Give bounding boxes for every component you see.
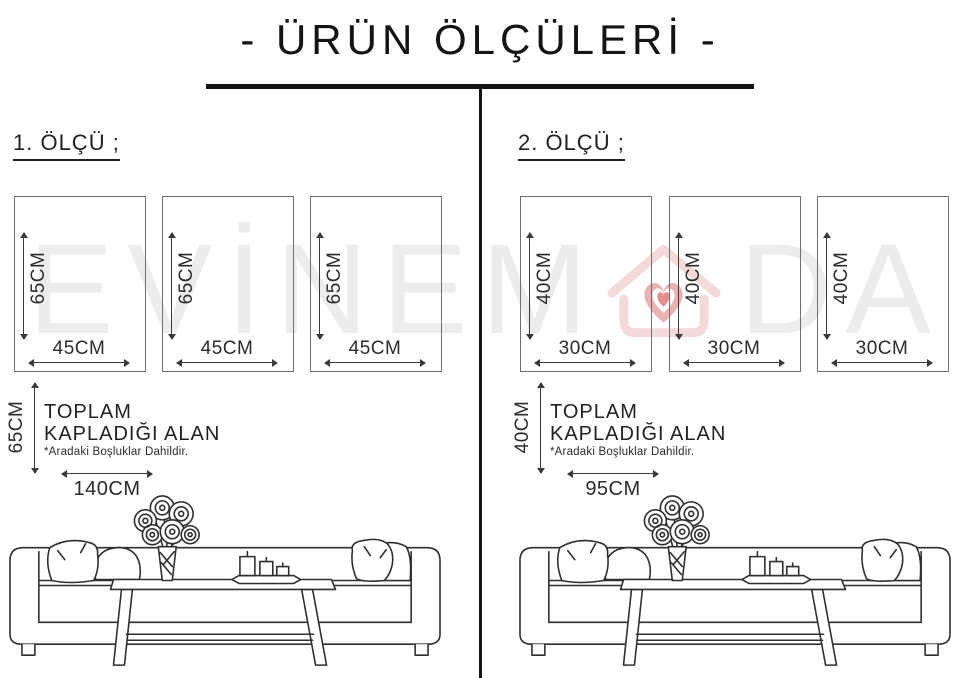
width-dimension-arrow xyxy=(177,362,277,363)
width-dimension-arrow xyxy=(684,362,784,363)
total-height-label: 40CM xyxy=(512,387,534,467)
artwork-panel: 40CM 30CM xyxy=(520,196,652,372)
width-dimension-label: 45CM xyxy=(27,338,131,360)
sofa-illustration xyxy=(6,494,444,670)
total-height-arrow xyxy=(34,383,35,473)
total-width-arrow xyxy=(62,473,152,474)
total-area-subtitle: KAPLADIĞI ALAN xyxy=(44,423,220,445)
sofa-illustration xyxy=(516,494,954,670)
total-area-title: TOPLAM xyxy=(550,401,726,423)
artwork-panel: 40CM 30CM xyxy=(669,196,801,372)
total-area-note: *Aradaki Boşluklar Dahildir. xyxy=(550,446,726,458)
width-dimension-label: 30CM xyxy=(533,338,637,360)
width-dimension-label: 45CM xyxy=(323,338,427,360)
total-area-subtitle: KAPLADIĞI ALAN xyxy=(550,423,726,445)
artwork-panel: 65CM 45CM xyxy=(162,196,294,372)
width-dimension-arrow xyxy=(325,362,425,363)
width-dimension-arrow xyxy=(832,362,932,363)
total-height-label: 65CM xyxy=(6,387,28,467)
product-dimensions-infographic: - ÜRÜN ÖLÇÜLERİ - E V İ N E M D A 1. ÖLÇ… xyxy=(0,0,960,678)
width-dimension-arrow xyxy=(29,362,129,363)
height-dimension-arrow xyxy=(826,233,827,339)
width-dimension-label: 30CM xyxy=(682,338,786,360)
height-dimension-label: 65CM xyxy=(28,238,50,318)
total-height-arrow xyxy=(540,383,541,473)
height-dimension-arrow xyxy=(23,233,24,339)
height-dimension-arrow xyxy=(529,233,530,339)
width-dimension-label: 30CM xyxy=(830,338,934,360)
artwork-panel: 40CM 30CM xyxy=(817,196,949,372)
width-dimension-label: 45CM xyxy=(175,338,279,360)
total-area-title: TOPLAM xyxy=(44,401,220,423)
total-width-arrow xyxy=(568,473,658,474)
height-dimension-label: 40CM xyxy=(831,238,853,318)
section-size-2: 2. ÖLÇÜ ; 40CM 30CM 40CM 30CM 40CM 30CM … xyxy=(506,0,960,678)
total-area-text: TOPLAM KAPLADIĞI ALAN *Aradaki Boşluklar… xyxy=(44,401,220,458)
artwork-panel: 65CM 45CM xyxy=(14,196,146,372)
section-size-1: 1. ÖLÇÜ ; 65CM 45CM 65CM 45CM 65CM 45CM … xyxy=(0,0,480,678)
height-dimension-label: 65CM xyxy=(324,238,346,318)
height-dimension-arrow xyxy=(171,233,172,339)
height-dimension-label: 40CM xyxy=(534,238,556,318)
height-dimension-arrow xyxy=(678,233,679,339)
width-dimension-arrow xyxy=(535,362,635,363)
section-heading: 1. ÖLÇÜ ; xyxy=(13,130,120,161)
total-area-text: TOPLAM KAPLADIĞI ALAN *Aradaki Boşluklar… xyxy=(550,401,726,458)
height-dimension-label: 65CM xyxy=(176,238,198,318)
height-dimension-arrow xyxy=(319,233,320,339)
height-dimension-label: 40CM xyxy=(683,238,705,318)
section-heading: 2. ÖLÇÜ ; xyxy=(518,130,625,161)
total-area-note: *Aradaki Boşluklar Dahildir. xyxy=(44,446,220,458)
artwork-panel: 65CM 45CM xyxy=(310,196,442,372)
